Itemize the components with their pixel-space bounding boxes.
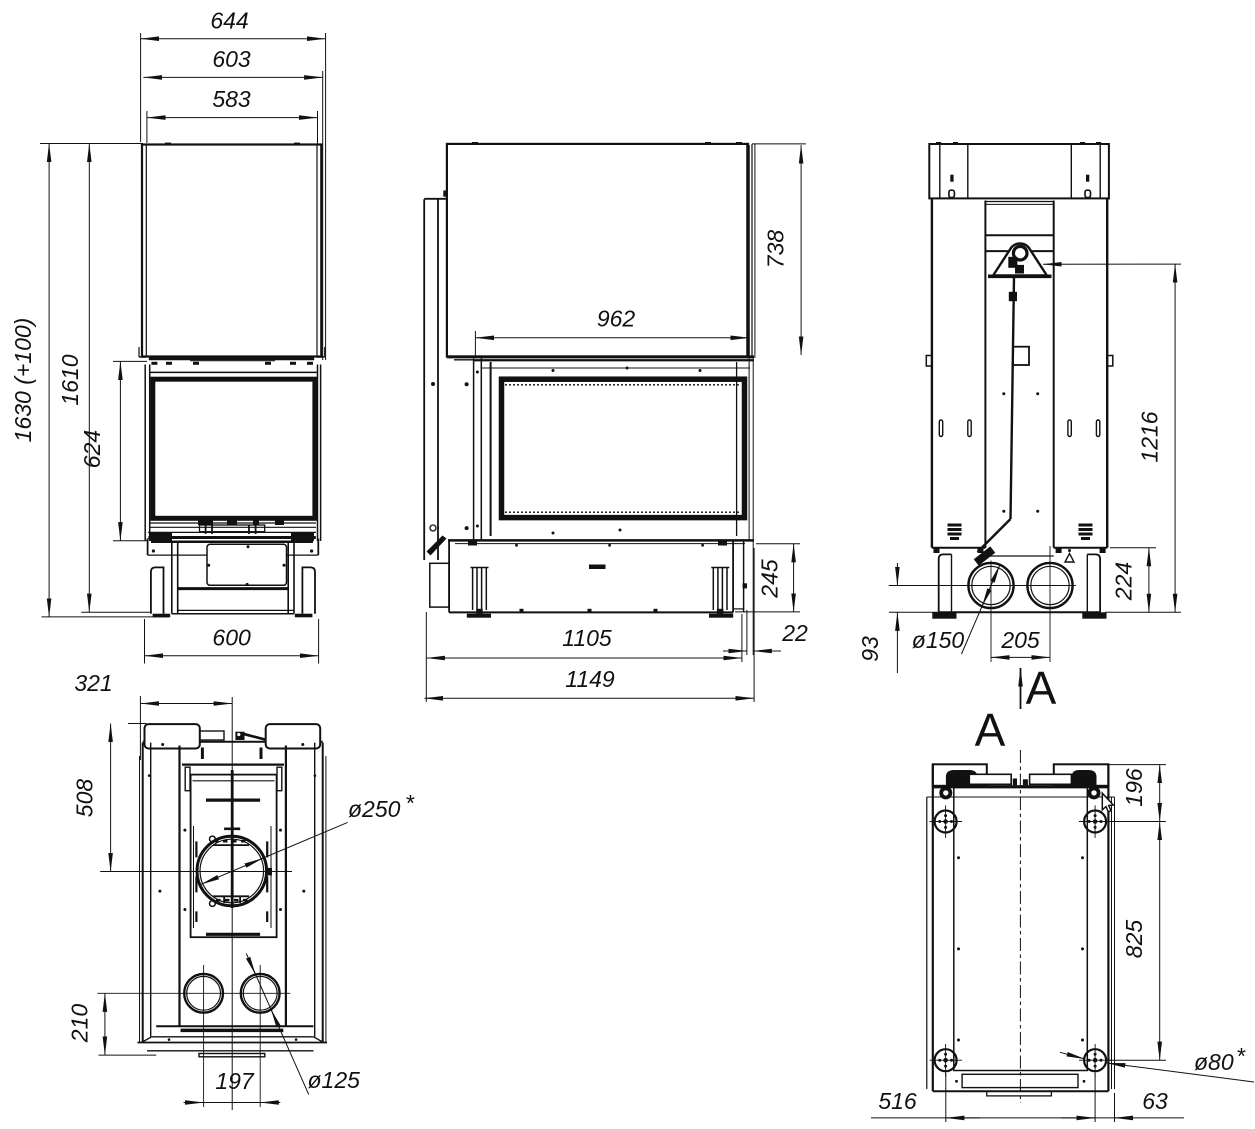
- svg-text:1105: 1105: [562, 625, 612, 651]
- svg-text:ø125: ø125: [308, 1067, 361, 1093]
- svg-text:825: 825: [1121, 920, 1147, 959]
- svg-text:196: 196: [1121, 768, 1147, 807]
- svg-text:583: 583: [212, 86, 251, 112]
- svg-text:508: 508: [72, 779, 98, 818]
- svg-text:1610: 1610: [57, 354, 83, 405]
- svg-text:1216: 1216: [1137, 411, 1163, 462]
- svg-text:245: 245: [757, 559, 783, 599]
- svg-text:1630 (+100): 1630 (+100): [10, 318, 36, 443]
- svg-text:ø150: ø150: [912, 627, 965, 653]
- svg-text:321: 321: [74, 670, 112, 696]
- svg-text:205: 205: [1000, 627, 1040, 653]
- svg-text:22: 22: [781, 620, 808, 646]
- svg-text:*: *: [405, 790, 415, 816]
- svg-text:624: 624: [79, 430, 105, 468]
- svg-text:603: 603: [212, 46, 251, 72]
- svg-text:A: A: [1026, 662, 1057, 714]
- svg-text:644: 644: [210, 8, 248, 34]
- svg-text:962: 962: [597, 306, 636, 332]
- svg-text:224: 224: [1111, 562, 1137, 601]
- svg-text:210: 210: [67, 1004, 93, 1044]
- svg-text:*: *: [1236, 1043, 1246, 1069]
- svg-text:ø250: ø250: [348, 796, 401, 822]
- svg-text:197: 197: [215, 1068, 255, 1094]
- svg-text:ø80: ø80: [1194, 1049, 1234, 1075]
- svg-text:600: 600: [212, 625, 251, 651]
- svg-text:93: 93: [857, 636, 883, 662]
- svg-text:A: A: [975, 704, 1006, 756]
- svg-text:63: 63: [1142, 1088, 1168, 1114]
- svg-text:516: 516: [878, 1088, 917, 1114]
- svg-text:1149: 1149: [565, 666, 615, 692]
- svg-text:738: 738: [763, 230, 789, 269]
